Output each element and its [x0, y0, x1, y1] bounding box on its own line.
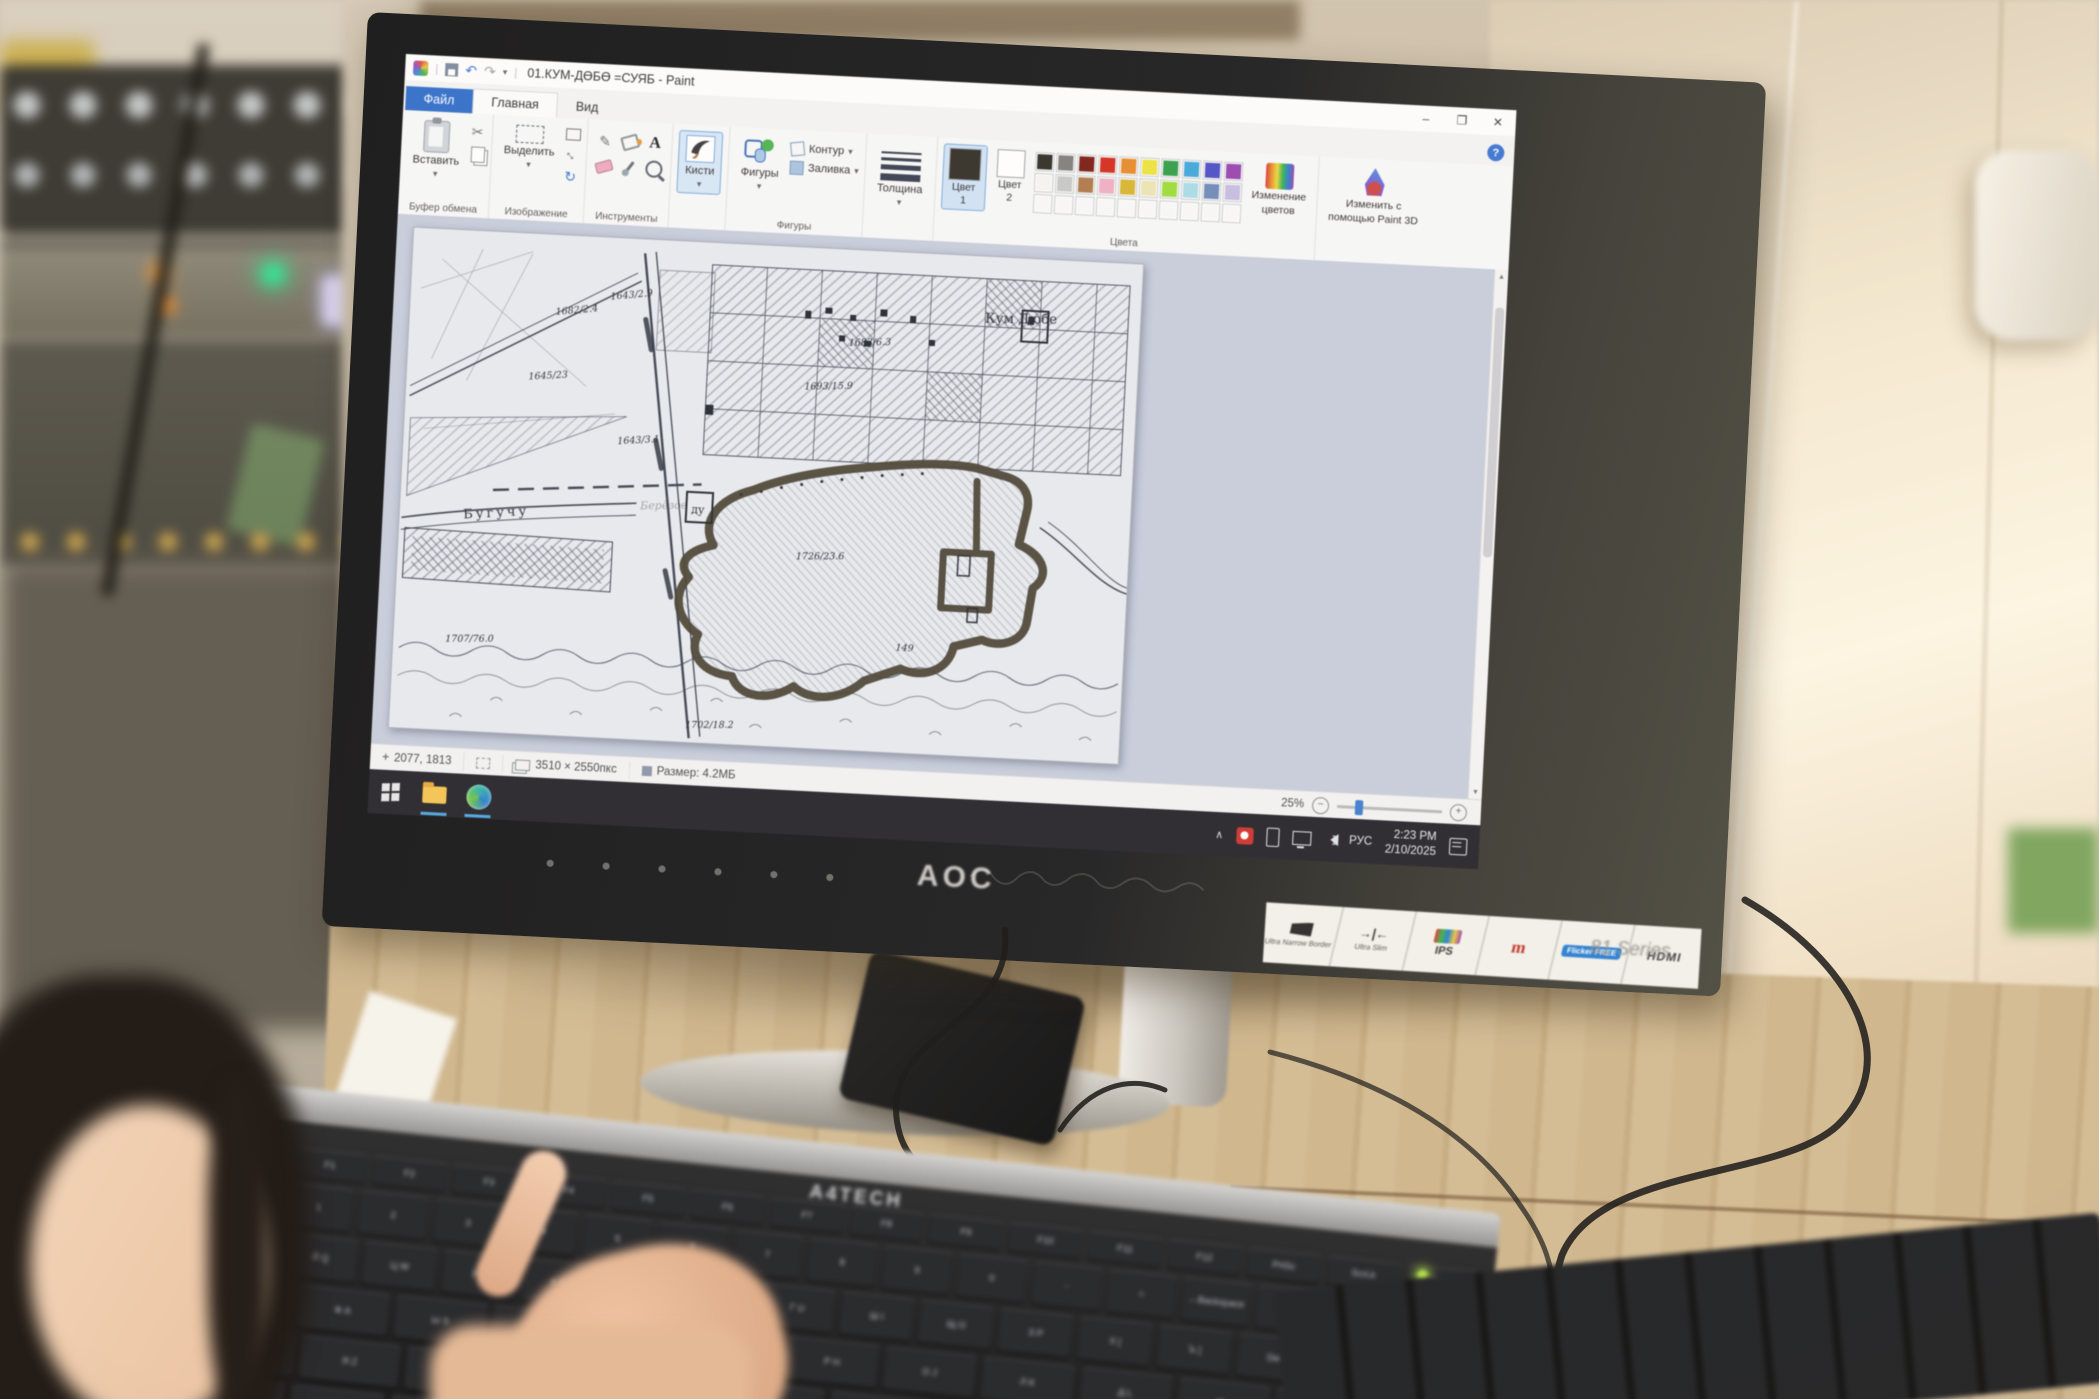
scroll-down-icon[interactable]: ▼: [1469, 785, 1483, 800]
paste-label: Вставить: [412, 153, 459, 167]
palette-color[interactable]: [1202, 160, 1222, 180]
group-tools: ✎ A Инструменты: [584, 119, 674, 227]
keyboard-key: F12: [1167, 1239, 1242, 1274]
outline-icon: [790, 141, 805, 156]
system-tray: ∧ ))) РУС 2:23 PM 2/10/2025: [1214, 819, 1479, 862]
keyboard-key: F2: [372, 1156, 447, 1191]
shapes-icon: [743, 136, 778, 166]
display-tray-icon[interactable]: [1292, 831, 1312, 846]
keyboard-key: 0: [956, 1254, 1028, 1303]
screen: | ↶ ↷ ▾ | 01.КУМ-ДӨБӨ =СУЯБ - Paint – ❐ …: [367, 54, 1516, 869]
monitor-series-label: 81 Series: [1590, 937, 1671, 963]
file-explorer-taskbar-icon[interactable]: [411, 771, 457, 817]
date: 2/10/2025: [1384, 844, 1436, 859]
sticker-label: Ultra Narrow Border: [1264, 936, 1333, 949]
speaker-icon: [1324, 833, 1339, 846]
bezel-scribbles: [964, 851, 1226, 904]
edit-colors-label2: цветов: [1261, 203, 1295, 217]
tab-file[interactable]: Файл: [405, 86, 473, 113]
brushes-label: Кисти: [685, 164, 715, 177]
group-colors: Цвет 1 Цвет 2 Изменен: [933, 137, 1320, 260]
tab-view[interactable]: Вид: [557, 94, 617, 121]
map-parcel-number: 149: [895, 643, 914, 655]
palette-color[interactable]: [1117, 177, 1137, 197]
keyboard-key: F6: [690, 1189, 765, 1224]
map-parcel-number: 1643/3.1: [617, 434, 660, 447]
recording-tray-icon[interactable]: [1236, 826, 1254, 844]
brush-icon: [685, 134, 716, 163]
keyboard-key: Р H: [784, 1336, 879, 1387]
keyboard-key: Ц W: [361, 1241, 438, 1290]
keyboard-key: -: [1031, 1261, 1103, 1310]
palette-color-empty[interactable]: [1095, 197, 1115, 217]
separator: |: [514, 65, 518, 79]
keyboard-key: Х [: [1077, 1317, 1154, 1366]
map-scan: Кум Дюбе Бугучу ду Берёзов 1643/2.9 1682…: [389, 228, 1143, 764]
map-parcel-number: 1645/23: [528, 369, 568, 382]
color2-label2: 2: [1006, 192, 1012, 204]
paint-app-icon: [413, 60, 429, 76]
keyboard-key: PrtSc: [1246, 1248, 1321, 1283]
map-parcel-number: 1683/6.3: [849, 337, 892, 349]
select-button[interactable]: Выделить ▾: [497, 121, 562, 175]
zoom-slider[interactable]: [1337, 805, 1442, 813]
keyboard-key: Win: [287, 1384, 385, 1399]
keyboard-key: 8: [806, 1238, 878, 1287]
shapes-label: Фигуры: [740, 166, 778, 180]
palette-color-empty[interactable]: [1200, 202, 1220, 222]
fill-label: Заливка: [808, 162, 851, 176]
sticker-label: Ultra Slim: [1354, 942, 1389, 953]
map-parcel-number: 1707/76.0: [445, 634, 494, 645]
pencil-icon[interactable]: ✎: [599, 132, 612, 150]
palette-color[interactable]: [1160, 158, 1180, 178]
palette-color[interactable]: [1159, 179, 1179, 199]
keyboard-key: Щ O: [918, 1300, 995, 1349]
time: 2:23 PM: [1394, 829, 1437, 843]
palette-color-empty[interactable]: [1053, 195, 1073, 215]
monitor-glyph-icon: [1289, 921, 1314, 936]
green-object: [2008, 828, 2099, 933]
qat-dropdown-icon[interactable]: ▾: [502, 66, 507, 77]
keyboard-key: ←Backspace: [1180, 1277, 1252, 1326]
palette-color-empty[interactable]: [1179, 201, 1199, 221]
chevron-down-icon: ▾: [756, 181, 761, 192]
color2-label: Цвет: [998, 178, 1022, 191]
zoom-level: 25%: [1281, 797, 1305, 810]
start-button[interactable]: [367, 769, 413, 815]
keyboard-key: Ф A: [295, 1285, 390, 1336]
color1-label: Цвет: [952, 181, 976, 194]
clock[interactable]: 2:23 PM 2/10/2025: [1384, 828, 1437, 860]
m-logo-icon: m: [1509, 937, 1528, 958]
palette-color[interactable]: [1033, 173, 1053, 193]
vertical-scrollbar[interactable]: ▲ ▼: [1468, 269, 1509, 799]
clipboard-icon: [423, 120, 451, 153]
cursor-position-icon: +: [382, 752, 389, 764]
palette-color[interactable]: [1097, 155, 1117, 175]
group-thickness: Толщина ▾: [862, 133, 938, 240]
folder-icon: [422, 785, 447, 803]
outline-button[interactable]: Контур ▾: [791, 142, 860, 159]
phone-tray-icon[interactable]: [1266, 827, 1280, 847]
palette-color[interactable]: [1139, 157, 1159, 177]
color2-swatch: [996, 149, 1025, 178]
keyboard-key: =: [1105, 1269, 1177, 1318]
minimize-button[interactable]: –: [1407, 105, 1444, 133]
help-button[interactable]: ?: [1487, 144, 1505, 162]
palette-color[interactable]: [1180, 180, 1200, 200]
zoom-out-button[interactable]: −: [1312, 796, 1330, 814]
file-size: Размер: 4.2МБ: [656, 766, 736, 782]
chevron-down-icon: ▾: [848, 146, 853, 157]
window-title: 01.КУМ-ДӨБӨ =СУЯБ - Paint: [527, 66, 695, 88]
keyboard-key: F10: [1008, 1223, 1083, 1258]
keyboard-key: Ъ ]: [1156, 1325, 1233, 1374]
chevron-down-icon: ▾: [433, 168, 438, 179]
palette-color[interactable]: [1223, 162, 1243, 182]
resize-icon[interactable]: ↔: [562, 144, 584, 166]
keyboard-key: F9: [928, 1214, 1003, 1249]
photo-scene: | ↶ ↷ ▾ | 01.КУМ-ДӨБӨ =СУЯБ - Paint – ❐ …: [0, 0, 2099, 1399]
palette-color[interactable]: [1056, 153, 1076, 173]
paste-button[interactable]: Вставить ▾: [405, 116, 467, 184]
quick-access-toolbar: | ↶ ↷ ▾ |: [405, 59, 518, 80]
palette-color[interactable]: [1035, 152, 1055, 172]
palette-color[interactable]: [1075, 175, 1095, 195]
thickness-icon: [880, 143, 922, 182]
action-center-icon[interactable]: [1449, 837, 1468, 855]
sticker-label: IPS: [1434, 945, 1455, 958]
green-led: [262, 264, 284, 284]
bezel-buttons: [545, 858, 845, 883]
chevron-down-icon: ▾: [526, 159, 531, 170]
color2-button[interactable]: Цвет 2: [990, 146, 1031, 208]
map-parcel-number: 1693/15.9: [804, 381, 853, 393]
edit-colors-icon: [1265, 163, 1294, 190]
copy-icon[interactable]: [470, 146, 485, 163]
windows-logo-icon: [381, 783, 400, 801]
fill-icon: [790, 161, 805, 176]
group-clipboard: Вставить ▾ ✂ Буфер обмена: [398, 110, 494, 218]
select-label: Выделить: [504, 144, 555, 159]
person-hair-strand: [208, 1080, 268, 1399]
undo-icon[interactable]: ↶: [465, 63, 477, 78]
edit-colors-label: Изменение: [1251, 189, 1306, 204]
arrows-icon: →|←: [1358, 925, 1391, 942]
color-picker-icon[interactable]: [623, 161, 635, 175]
palette-color-empty[interactable]: [1137, 199, 1157, 219]
keyboard-key: Л K: [980, 1357, 1075, 1399]
color1-swatch: [948, 148, 982, 182]
keyboard-key: Т N: [828, 1391, 931, 1399]
ips-color-icon: [1433, 929, 1462, 944]
save-icon[interactable]: [445, 62, 459, 76]
paint3d-button[interactable]: Изменить с помощью Paint 3D: [1323, 163, 1426, 231]
separator: |: [435, 61, 439, 75]
edit-colors-button[interactable]: Изменение цветов: [1245, 159, 1312, 221]
palette-color[interactable]: [1096, 176, 1116, 196]
magnifier-icon[interactable]: [645, 160, 663, 178]
color1-label2: 1: [960, 194, 966, 206]
outline-label: Контур: [809, 143, 845, 157]
scroll-up-icon[interactable]: ▲: [1495, 269, 1509, 284]
language-indicator[interactable]: РУС: [1349, 835, 1373, 848]
chevron-down-icon: ▾: [854, 165, 859, 176]
scrollbar-thumb[interactable]: [1482, 307, 1504, 557]
palette-color-empty[interactable]: [1221, 203, 1241, 223]
zoom-in-button[interactable]: +: [1449, 803, 1467, 821]
fill-button[interactable]: Заливка ▾: [790, 161, 859, 178]
forearm: [430, 1325, 750, 1399]
canvas-workspace[interactable]: Кум Дюбе Бугучу ду Берёзов 1643/2.9 1682…: [371, 214, 1508, 800]
selection-size-icon: [476, 757, 491, 769]
palette-color-empty[interactable]: [1032, 194, 1052, 214]
paint3d-label2: помощью Paint 3D: [1328, 210, 1418, 227]
volume-tray-icon[interactable]: ))): [1324, 833, 1337, 846]
crop-icon[interactable]: [566, 128, 582, 141]
keyboard-key: Д L: [1078, 1367, 1173, 1399]
palette-color[interactable]: [1076, 154, 1096, 174]
map-label-du: ду: [691, 503, 705, 517]
keyboard-key: 2: [357, 1191, 429, 1240]
chevron-down-icon: ▾: [896, 197, 901, 208]
brushes-button[interactable]: Кисти ▾: [677, 130, 724, 195]
wall-pipe: [1975, 150, 2099, 340]
map-label-kum-dyube: Кум Дюбе: [985, 311, 1057, 328]
keyboard-key: О J: [882, 1346, 977, 1397]
equipment-shadow: [0, 560, 370, 1030]
maximize-button[interactable]: ❐: [1443, 107, 1480, 135]
map-label-berezov: Берёзов: [639, 499, 687, 513]
select-icon: [516, 125, 545, 144]
rotate-icon[interactable]: ↻: [564, 168, 580, 186]
palette-color[interactable]: [1181, 159, 1201, 179]
keyboard-key: 9: [881, 1246, 953, 1295]
fill-bucket-icon[interactable]: [620, 133, 640, 151]
hidden-icons-chevron[interactable]: ∧: [1215, 827, 1224, 840]
monitor: | ↶ ↷ ▾ | 01.КУМ-ДӨБӨ =СУЯБ - Paint – ❐ …: [322, 12, 1766, 997]
image-dimensions-icon: [515, 759, 531, 771]
map-parcel-number: 1702/18.2: [685, 720, 734, 731]
close-button[interactable]: ✕: [1479, 108, 1516, 136]
cut-icon[interactable]: ✂: [471, 123, 486, 141]
keyboard-key: F11: [1087, 1231, 1162, 1266]
file-size-icon: [641, 766, 651, 776]
palette-color-empty[interactable]: [1074, 196, 1094, 216]
palette-color[interactable]: [1118, 156, 1138, 176]
thickness-label: Толщина: [877, 182, 923, 196]
palette-color[interactable]: [1222, 182, 1242, 202]
redo-icon[interactable]: ↷: [484, 64, 496, 79]
map-parcel-number: 1726/23.6: [796, 551, 845, 562]
keyboard-key: Ж ;: [1176, 1377, 1271, 1399]
thickness-button[interactable]: Толщина ▾: [870, 140, 931, 213]
group-brushes: Кисти ▾: [669, 124, 731, 231]
browser-taskbar-icon[interactable]: [455, 774, 501, 820]
group-paint3d: Изменить с помощью Paint 3D: [1315, 156, 1432, 266]
cursor-position: 2077, 1813: [394, 752, 452, 767]
palette-color[interactable]: [1201, 181, 1221, 201]
group-image: Выделить ▾ ↔ ↻ Изображение: [488, 114, 589, 223]
eraser-icon[interactable]: [594, 159, 613, 174]
browser-icon: [465, 783, 491, 809]
color-palette: [1032, 148, 1243, 223]
zoom-slider-thumb[interactable]: [1355, 799, 1364, 814]
paint3d-icon: [1361, 168, 1388, 199]
chevron-down-icon: ▾: [697, 179, 702, 190]
color1-button[interactable]: Цвет 1: [940, 143, 987, 211]
keyboard-key: З P: [997, 1308, 1074, 1357]
palette-color-empty[interactable]: [1158, 200, 1178, 220]
group-shapes: Фигуры ▾ Контур ▾ Заливка ▾: [726, 127, 868, 238]
palette-color[interactable]: [1054, 174, 1074, 194]
keyboard-key: F5: [610, 1181, 685, 1216]
text-tool-icon[interactable]: A: [649, 134, 661, 153]
keyboard-key: Ш I: [838, 1292, 915, 1341]
shapes-button[interactable]: Фигуры ▾: [734, 133, 787, 196]
keyboard-key: Я Z: [298, 1335, 401, 1387]
image-dimensions: 3510 × 2550пкс: [535, 759, 617, 775]
palette-color-empty[interactable]: [1116, 198, 1136, 218]
map-document[interactable]: Кум Дюбе Бугучу ду Берёзов 1643/2.9 1682…: [388, 227, 1144, 765]
palette-color[interactable]: [1138, 178, 1158, 198]
